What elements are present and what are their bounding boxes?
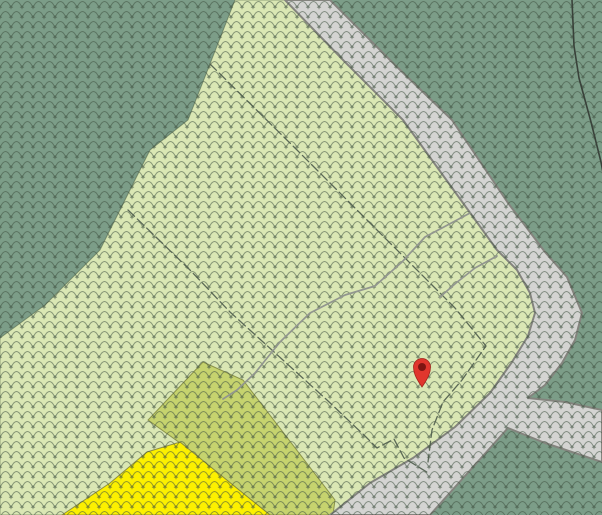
map-canvas[interactable] xyxy=(0,0,602,515)
location-marker-pin-center xyxy=(418,363,426,371)
forest-symbols-overlay xyxy=(0,0,602,515)
map-viewport[interactable] xyxy=(0,0,602,515)
